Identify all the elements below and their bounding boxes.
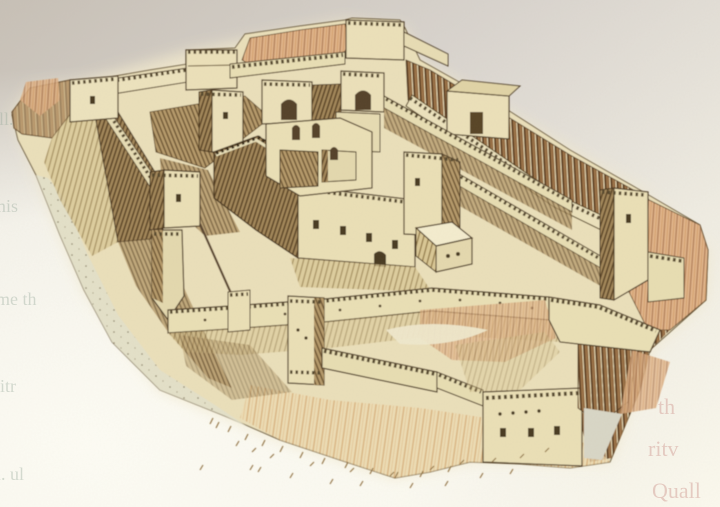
svg-text:mis: mis bbox=[0, 196, 18, 216]
svg-text:ill.: ill. bbox=[0, 109, 14, 129]
svg-text:ritr: ritr bbox=[0, 376, 16, 396]
svg-text:th: th bbox=[658, 394, 675, 419]
svg-text:me th: me th bbox=[0, 289, 37, 309]
svg-text:l. ul: l. ul bbox=[0, 464, 24, 484]
svg-text:ritv: ritv bbox=[648, 436, 679, 461]
svg-text:Quall: Quall bbox=[652, 478, 701, 503]
